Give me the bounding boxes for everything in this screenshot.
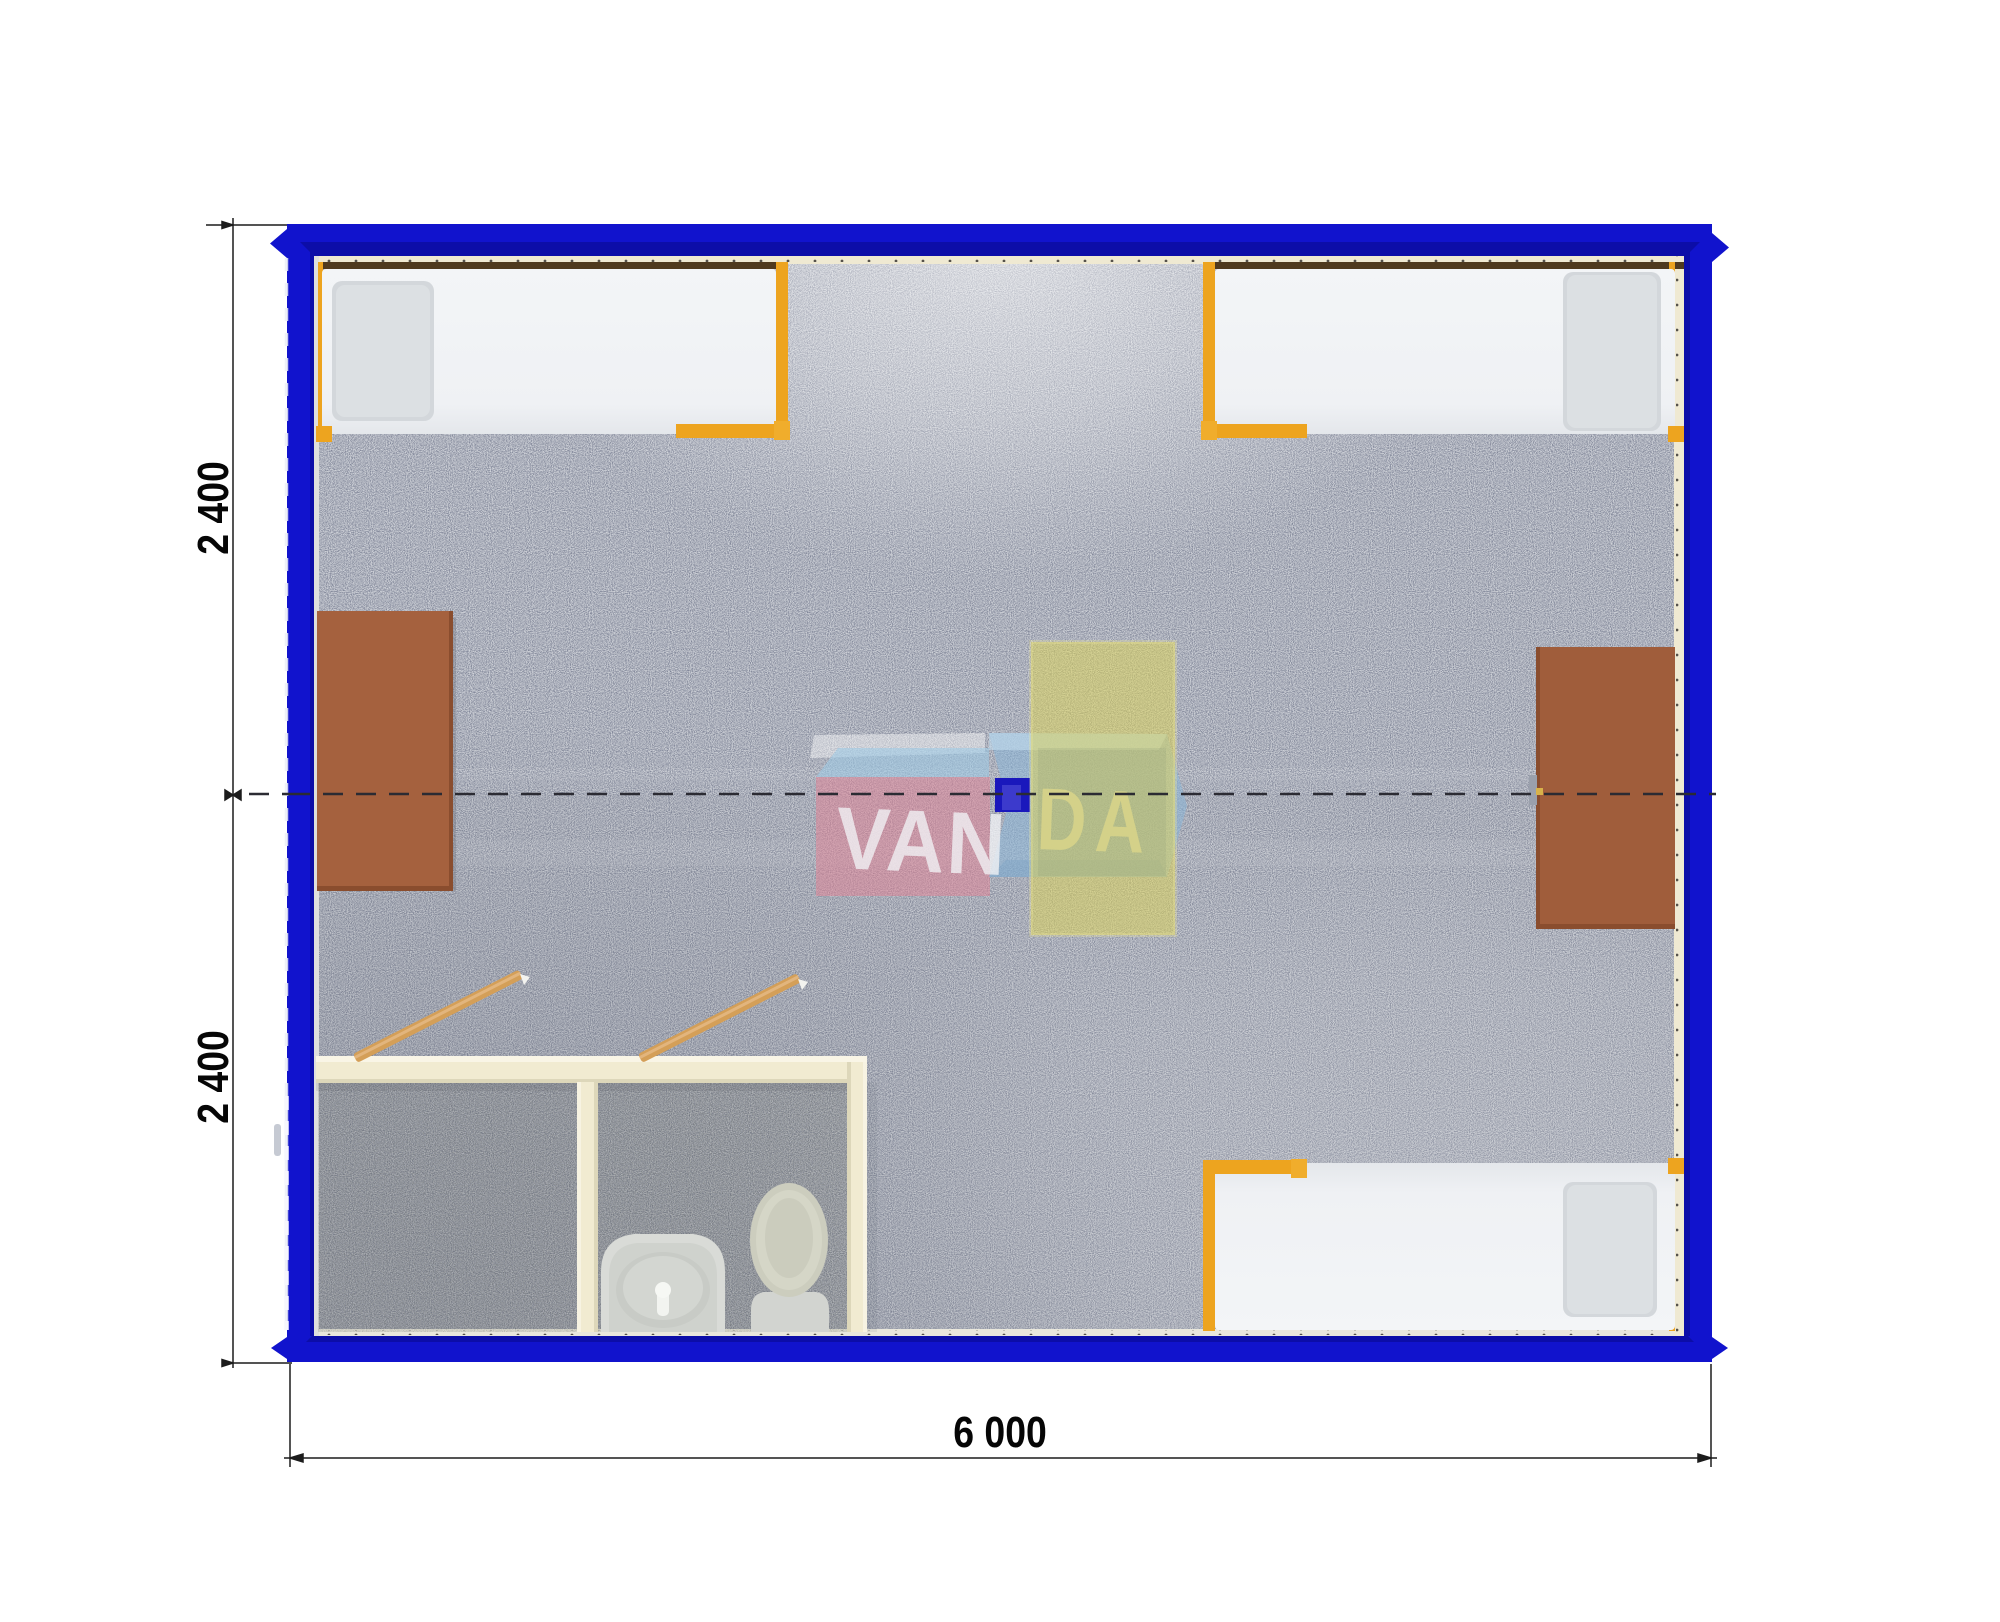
svg-text:2 400: 2 400 xyxy=(188,461,238,555)
svg-text:2 400: 2 400 xyxy=(188,1030,238,1124)
svg-text:VAN: VAN xyxy=(834,788,1009,894)
svg-text:6 000: 6 000 xyxy=(953,1407,1047,1457)
